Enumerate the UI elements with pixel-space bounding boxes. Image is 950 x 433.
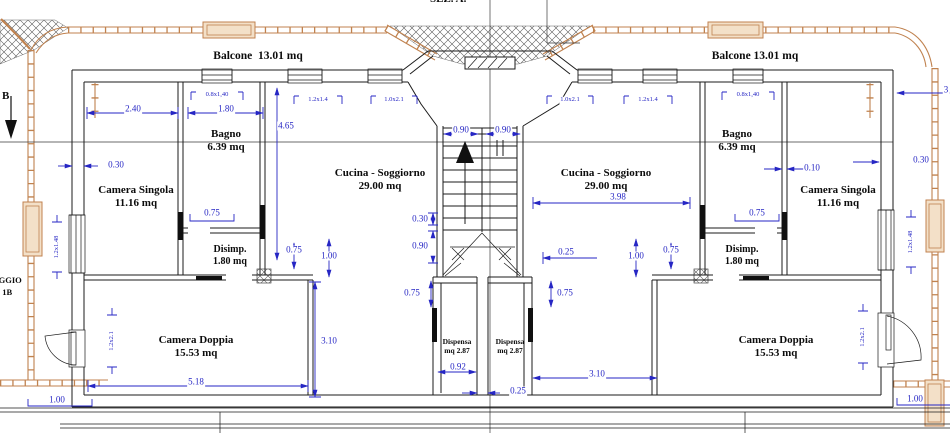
dimension-label: 1.2x1.4 xyxy=(637,97,659,104)
room-label: Bagno 6.39 mq xyxy=(207,128,244,154)
room-label: Dispensa mq 2.87 xyxy=(443,338,472,356)
room-label: Camera Singola 11.16 mq xyxy=(800,184,875,210)
dimension-label: 1.2x1.48 xyxy=(54,235,61,260)
dimension-label: 5.18 xyxy=(187,378,205,387)
dispensa-walls xyxy=(432,263,533,395)
dimension-label: 3.10 xyxy=(588,370,606,379)
room-label: Disimp. 1.80 mq xyxy=(213,244,247,268)
dimension-label: 1.2x1.4 xyxy=(307,97,329,104)
dimension-label: 0.92 xyxy=(449,363,467,372)
plan-linework xyxy=(0,0,950,433)
stairs xyxy=(437,126,523,277)
dimension-label: 0.75 xyxy=(662,246,680,255)
dimension-label: 0.30 xyxy=(107,161,125,170)
dimension-label: 0.75 xyxy=(403,289,421,298)
dimension-label: 4.65 xyxy=(277,122,295,131)
hatch-pier-left xyxy=(257,269,271,283)
stair-up-arrow-icon xyxy=(456,141,474,163)
dimension-label: 1.2x2.1 xyxy=(109,330,116,352)
dimension-label: 1.2x1.48 xyxy=(908,230,915,255)
dimension-label: 1.00 xyxy=(48,396,66,405)
dimension-label: 0.75 xyxy=(285,246,303,255)
dimension-label: 0.75 xyxy=(748,209,766,218)
dimension-label: 0.25 xyxy=(509,387,527,396)
hatch-layer xyxy=(0,20,708,283)
floor-plan: SEZ. A. B OGGIO . 1B Balcone 13.01 mqBal… xyxy=(0,0,950,433)
dimension-label: 0.30 xyxy=(912,156,930,165)
dimension-label: 2.40 xyxy=(124,105,142,114)
room-label: Cucina - Soggiorno 29.00 mq xyxy=(561,167,651,193)
clipped-label-line2: . 1B xyxy=(0,288,12,297)
room-label: Balcone 13.01 mq xyxy=(712,50,799,64)
planter-boxes xyxy=(23,22,944,426)
dimension-label: 1.80 xyxy=(217,105,235,114)
dimension-label: 0.10 xyxy=(803,164,821,173)
room-label: Disimp. 1.80 mq xyxy=(725,244,759,268)
dimension-label: 3.10 xyxy=(320,337,338,346)
dimension-label: 0.75 xyxy=(556,289,574,298)
room-label: Bagno 6.39 mq xyxy=(718,128,755,154)
dimension-label: 0.90 xyxy=(452,126,470,135)
dimension-label: 0.8x1,40 xyxy=(736,92,761,99)
room-label: Balcone 13.01 mq xyxy=(213,50,302,64)
room-label: Dispensa mq 2.87 xyxy=(496,338,525,356)
room-label: Camera Singola 11.16 mq xyxy=(98,184,173,210)
dimension-label: 1.00 xyxy=(627,252,645,261)
clipped-label-line1: OGGIO xyxy=(0,276,22,285)
dimension-label: 3 xyxy=(943,86,950,95)
door-leaf-disimp-right xyxy=(743,276,769,280)
dimension-label: 1.00 xyxy=(906,395,924,404)
section-b-marker: B xyxy=(2,91,9,102)
dimension-label: 1.0x2.1 xyxy=(559,97,581,104)
dimension-label: 0.30 xyxy=(411,215,429,224)
dimension-label: 1.00 xyxy=(320,252,338,261)
section-a-title: SEZ. A. xyxy=(430,0,466,5)
room-label: Camera Doppia 15.53 mq xyxy=(739,334,814,360)
dimension-label: 1.0x2.1 xyxy=(383,97,405,104)
room-label: Cucina - Soggiorno 29.00 mq xyxy=(335,167,425,193)
dimension-label: 1.2x2.1 xyxy=(860,326,867,348)
dimension-label: 0.90 xyxy=(494,126,512,135)
section-arrow-b xyxy=(5,120,17,139)
dimension-label: 3.98 xyxy=(609,193,627,202)
balcony-railing-layer xyxy=(0,19,950,426)
door-leaf-disimp-left xyxy=(196,276,222,280)
dimension-label: 0.25 xyxy=(557,248,575,257)
dimension-label: 0.8x1,40 xyxy=(205,92,230,99)
ground-lines xyxy=(0,408,950,433)
hatch-pier-right xyxy=(694,269,708,283)
dimension-label: 0.75 xyxy=(203,209,221,218)
room-label: Camera Doppia 15.53 mq xyxy=(159,334,234,360)
dimension-label: 0.90 xyxy=(411,242,429,251)
